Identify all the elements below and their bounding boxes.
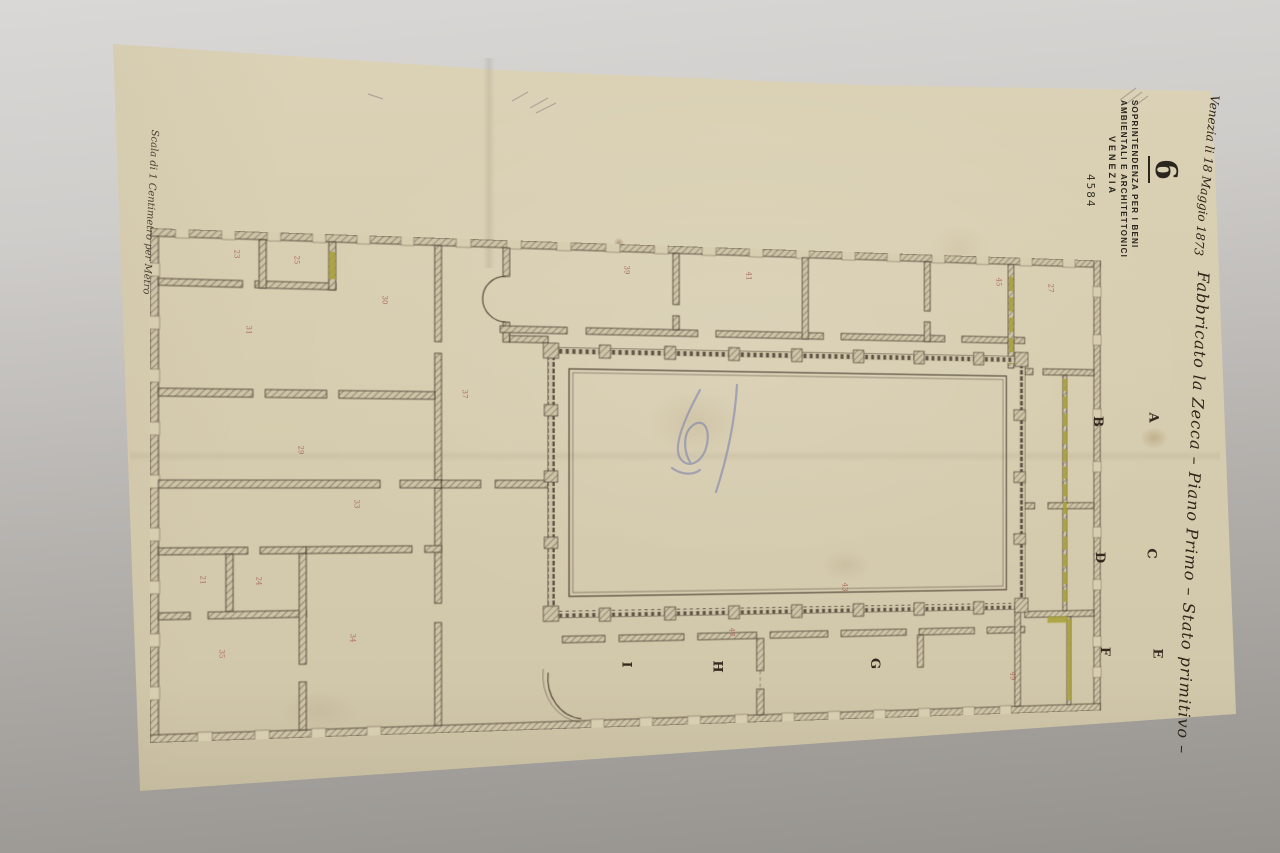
room-label-a: A	[1146, 412, 1161, 422]
room-label-b: B	[1090, 416, 1105, 427]
room-number: 47	[727, 628, 735, 637]
stamp-line: SOPRINTENDENZA PER I BENI	[1129, 100, 1140, 232]
room-number: 33	[352, 500, 360, 509]
room-number: 27	[1046, 284, 1054, 293]
stamp-number: 6	[1148, 156, 1180, 183]
room-label-g: G	[867, 658, 882, 669]
room-number: 24	[254, 577, 262, 586]
room-number: 39	[622, 266, 630, 275]
room-number: 35	[217, 650, 225, 659]
room-number: 23	[232, 250, 240, 259]
stamp-line: AMBIENTALI E ARCHITETTONICI	[1118, 100, 1129, 232]
room-number: 37	[460, 390, 468, 399]
room-number: 49	[1008, 672, 1016, 681]
soprintendenza-stamp: SOPRINTENDENZA PER I BENI AMBIENTALI E A…	[1106, 100, 1140, 232]
left-block-walls	[159, 236, 549, 734]
room-number: 43	[840, 583, 848, 592]
room-number: 30	[380, 296, 388, 305]
stamp-line: VENEZIA	[1106, 100, 1118, 232]
registry-number: 4584	[1084, 174, 1097, 209]
room-number: 25	[292, 256, 300, 265]
room-number: 34	[348, 634, 356, 643]
room-number: 21	[198, 576, 206, 585]
photo-backdrop: SOPRINTENDENZA PER I BENI AMBIENTALI E A…	[0, 0, 1280, 853]
room-number: 31	[244, 326, 252, 335]
room-number: 45	[994, 278, 1002, 287]
room-label-i: I	[619, 661, 634, 667]
right-strip-walls	[1025, 375, 1094, 706]
yellow-wall-highlight	[329, 252, 335, 280]
room-label-h: H	[710, 660, 725, 672]
room-label-c: C	[1144, 548, 1159, 558]
courtyard-colonnade	[543, 343, 1028, 623]
room-number: 29	[296, 446, 304, 455]
room-label-e: E	[1149, 649, 1164, 659]
room-number: 41	[744, 272, 752, 281]
room-label-f: F	[1097, 647, 1112, 656]
room-label-d: D	[1092, 552, 1107, 563]
